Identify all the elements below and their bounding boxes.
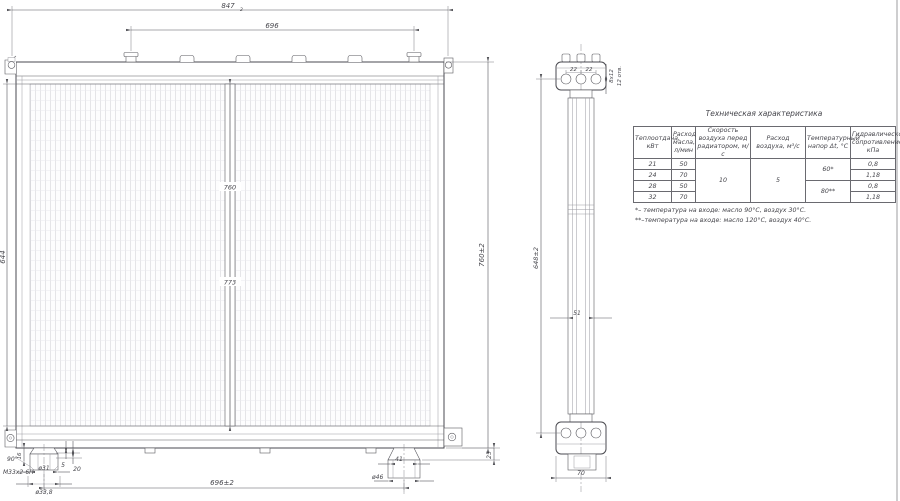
side-hole-pitch-1: 22 bbox=[570, 67, 577, 73]
cell-oil-flow: 70 bbox=[672, 192, 696, 203]
side-core-depth-label: 51 bbox=[573, 310, 581, 317]
side-view bbox=[556, 44, 606, 492]
dim-cap-span-label: 696 bbox=[265, 22, 279, 30]
dim-20-label: 20 bbox=[73, 466, 81, 473]
bracket-bottom-left bbox=[5, 430, 16, 447]
cell-resistance: 0,8 bbox=[851, 181, 896, 192]
cell-air-speed: 10 bbox=[696, 159, 751, 203]
dim-height-left-label: 644 bbox=[0, 250, 7, 263]
header-hydraulic-resistance: Гидравлическое сопротивление, кПа bbox=[851, 127, 896, 159]
cell-power: 32 bbox=[634, 192, 672, 203]
footnote-1: *– температура на входе: масло 90°С, воз… bbox=[635, 206, 811, 216]
table-row: 21 50 10 5 60* 0,8 bbox=[634, 159, 896, 170]
side-height-label: 648±2 bbox=[532, 247, 540, 269]
top-bolt-left bbox=[124, 53, 138, 63]
bottom-boss bbox=[145, 448, 155, 453]
thread-m33-label: М33х2-6Н bbox=[3, 469, 34, 476]
table-footnotes: *– температура на входе: масло 90°С, воз… bbox=[635, 206, 811, 226]
header-temp-head: Температурный напор Δt, °С bbox=[806, 127, 851, 159]
dim-center-upper-label: 760 bbox=[224, 184, 236, 192]
header-heat-output: Теплоотдача, кВт bbox=[634, 127, 672, 159]
side-holes-size-label: 8х12 bbox=[609, 69, 615, 83]
footnote-2: **–температура на входе: масло 120°С, во… bbox=[635, 216, 811, 226]
cell-resistance: 1,18 bbox=[851, 192, 896, 203]
header-air-speed: Скорость воздуха перед радиатором, м/с bbox=[696, 127, 751, 159]
spec-table-header-row: Теплоотдача, кВт Расход масла, л/мин Ско… bbox=[634, 127, 896, 159]
cell-temp-head-b: 80** bbox=[806, 181, 851, 203]
bottom-boss bbox=[260, 448, 270, 453]
dim-25-label: 25 bbox=[486, 451, 493, 459]
cell-oil-flow: 50 bbox=[672, 159, 696, 170]
dim-height-right-label: 760±2 bbox=[478, 243, 486, 267]
bracket-bottom-right bbox=[444, 428, 462, 446]
dia-46-label: ø46 bbox=[371, 474, 383, 481]
dim-5-label: 5 bbox=[61, 462, 65, 469]
spec-table-title: Техническая характеристика bbox=[633, 109, 895, 118]
top-bolt-right bbox=[407, 53, 421, 63]
side-core bbox=[568, 98, 594, 414]
dia-33-8-label: ø33,8 bbox=[34, 489, 52, 496]
cell-oil-flow: 70 bbox=[672, 170, 696, 181]
cell-resistance: 0,8 bbox=[851, 159, 896, 170]
cell-resistance: 1,18 bbox=[851, 170, 896, 181]
front-view bbox=[5, 53, 462, 495]
header-air-flow: Расход воздуха, м³/с bbox=[751, 127, 806, 159]
bracket-top-left bbox=[5, 56, 16, 74]
side-width-label: 70 bbox=[577, 470, 585, 477]
bottom-boss bbox=[366, 448, 376, 453]
dia-31-label: ø31 bbox=[37, 465, 49, 472]
spec-table: Теплоотдача, кВт Расход масла, л/мин Ско… bbox=[633, 126, 896, 203]
cell-temp-head-a: 60* bbox=[806, 159, 851, 181]
chamfer-90deg-label: 90° bbox=[7, 456, 18, 463]
top-caps bbox=[124, 53, 421, 63]
dim-bottom-span-label: 696±2 bbox=[210, 479, 234, 487]
dim-16-label: 16 bbox=[17, 452, 23, 459]
cell-air-flow: 5 bbox=[751, 159, 806, 203]
cell-oil-flow: 50 bbox=[672, 181, 696, 192]
cell-power: 28 bbox=[634, 181, 672, 192]
dim-total-width-tolerance: 2 bbox=[240, 7, 243, 13]
side-hole-pitch-2: 22 bbox=[586, 67, 593, 73]
cell-power: 21 bbox=[634, 159, 672, 170]
side-holes-count-label: 12 отв. bbox=[617, 66, 623, 87]
radiator-technical-drawing: 847 2 696 644 760±2 760 773 696±2 ø31 bbox=[0, 0, 900, 501]
dim-41-label: 41 bbox=[395, 456, 403, 463]
dim-center-lower-label: 773 bbox=[224, 279, 236, 287]
header-oil-flow: Расход масла, л/мин bbox=[672, 127, 696, 159]
dim-total-width-label: 847 bbox=[221, 2, 235, 10]
drawing-sheet: 847 2 696 644 760±2 760 773 696±2 ø31 bbox=[0, 0, 900, 501]
cell-power: 24 bbox=[634, 170, 672, 181]
bracket-top-right bbox=[444, 58, 453, 73]
